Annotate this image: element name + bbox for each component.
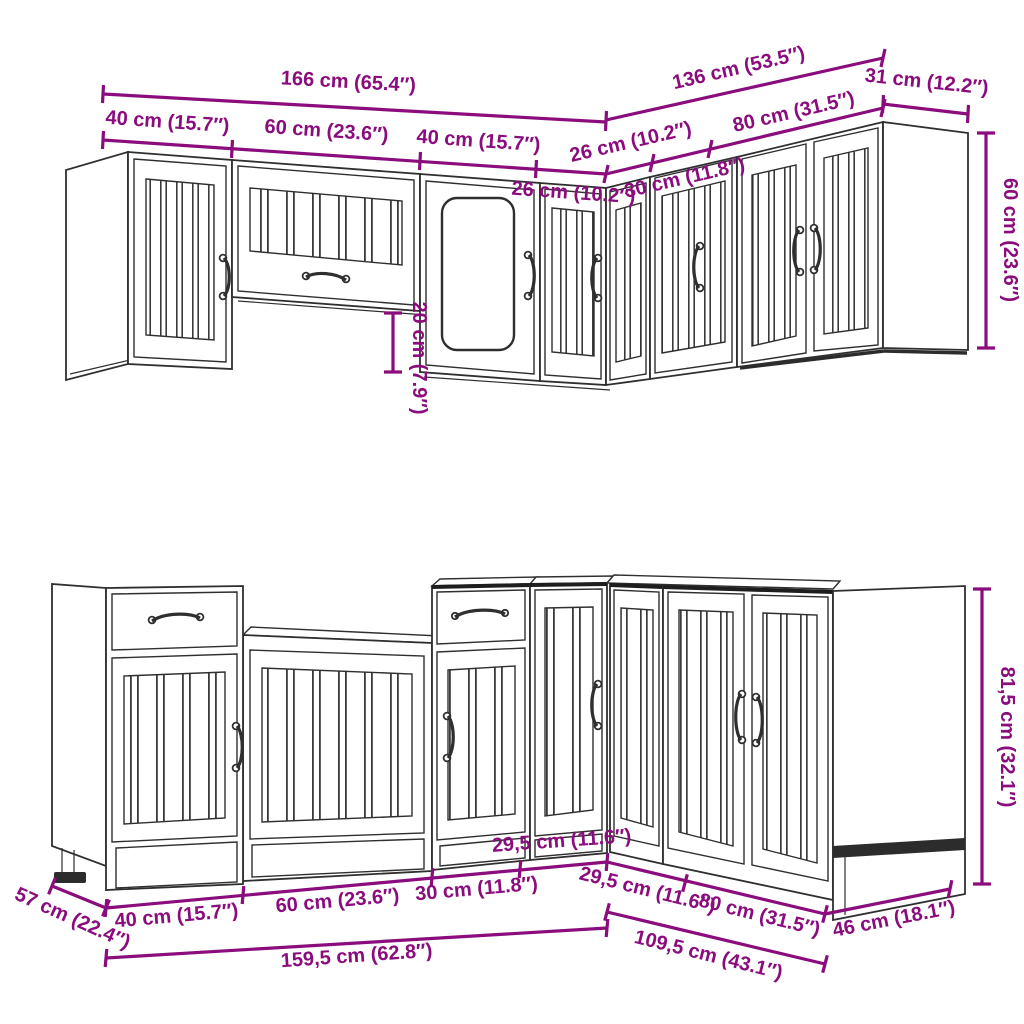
dim-label: 40 cm (15.7″) <box>105 107 230 138</box>
dim-base-front-total: 159,5 cm (62.8″) <box>105 919 608 972</box>
dim-label: 40 cm (15.7″) <box>416 126 541 157</box>
wall-cabinet-80-double <box>737 122 883 367</box>
base-left-side-panel <box>52 584 106 866</box>
base-cabinet-80-double <box>663 586 833 900</box>
dim-label: 26 cm (10.2″) <box>568 117 694 166</box>
dim-base-height: 81,5 cm (32.1″) <box>973 589 1018 884</box>
wall-right-side-panel <box>883 122 968 350</box>
base-corner-cabinet-return <box>610 584 663 864</box>
base-units-drawing <box>52 575 965 920</box>
wall-glass-cabinet-40 <box>420 174 540 381</box>
drawer-front <box>112 592 237 650</box>
dim-bridge-clearance: 20 cm (7.9″) <box>384 302 430 415</box>
base-right-side-panel <box>833 586 965 920</box>
dim-label: 31 cm (12.2″) <box>864 65 990 100</box>
dim-label: 166 cm (65.4″) <box>280 67 416 97</box>
kitchen-dimension-diagram: 166 cm (65.4″) 40 cm (15.7″) 60 cm (23.6… <box>0 0 1024 1024</box>
wall-corner-cabinet-26-front <box>540 183 606 385</box>
wall-cabinet-40 <box>128 152 232 369</box>
base-cabinet-30-drawer <box>432 577 538 870</box>
base-corner-cabinet-front <box>530 576 613 860</box>
dim-label: 20 cm (7.9″) <box>408 302 430 415</box>
dim-label: 81,5 cm (32.1″) <box>996 667 1018 808</box>
wall-left-side-panel <box>66 152 128 380</box>
wall-units-drawing <box>66 122 968 390</box>
base-cabinet-60 <box>243 627 440 881</box>
base-cabinet-40-drawer <box>52 584 243 890</box>
wall-corner-cabinet-26-return <box>606 177 650 385</box>
dim-label: 136 cm (53.5″) <box>670 42 807 94</box>
dim-label: 60 cm (23.6″) <box>264 116 389 147</box>
wall-bridge-cabinet-60 <box>232 160 426 315</box>
glass-door-window <box>442 198 514 350</box>
drawer-front <box>437 590 525 644</box>
dim-label: 60 cm (23.6″) <box>999 178 1021 302</box>
diagram-canvas: 166 cm (65.4″) 40 cm (15.7″) 60 cm (23.6… <box>0 0 1024 1024</box>
dim-wall-height: 60 cm (23.6″) <box>977 133 1021 348</box>
